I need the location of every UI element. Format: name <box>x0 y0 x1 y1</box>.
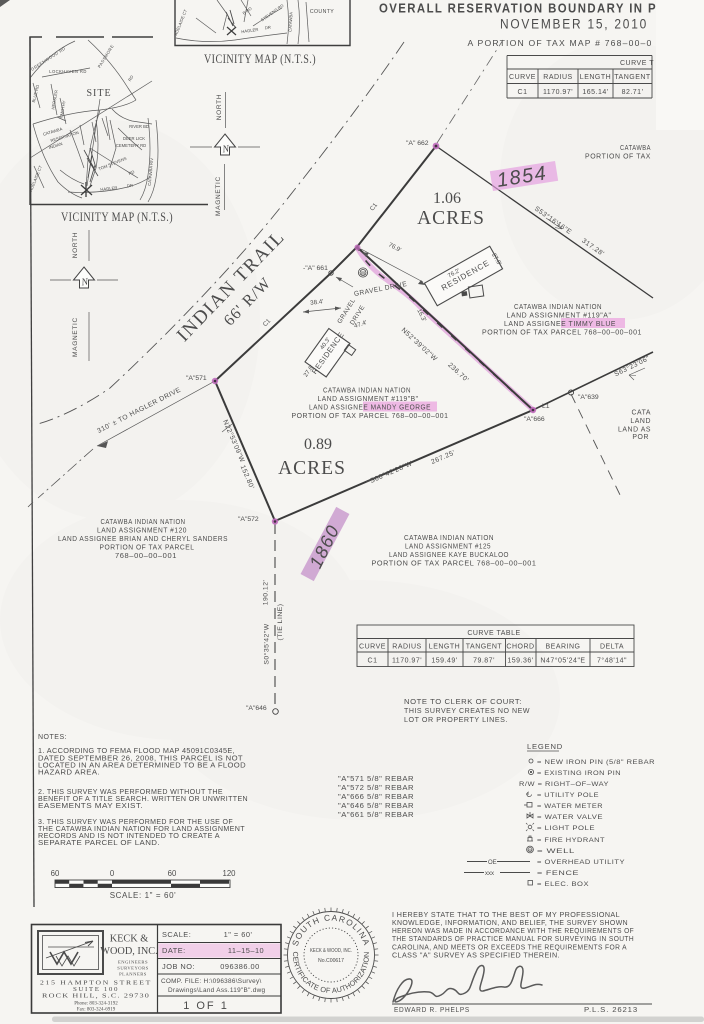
svg-text:TANGENT: TANGENT <box>466 644 503 651</box>
svg-text:= WELL: = WELL <box>537 848 575 855</box>
svg-text:"A"646: "A"646 <box>246 705 267 712</box>
svg-text:= UTILITY POLE: = UTILITY POLE <box>537 792 599 799</box>
svg-text:CATAWBA: CATAWBA <box>620 145 651 152</box>
svg-text:OE: OE <box>488 860 497 866</box>
svg-text:1" = 60': 1" = 60' <box>224 930 253 939</box>
svg-text:THE CATAWBA INDIAN NATION: THE CATAWBA INDIAN NATION FOR LAND ASSIG… <box>38 826 245 833</box>
svg-text:OVERALL RESERVATION BOUNDARY I: OVERALL RESERVATION BOUNDARY IN P <box>379 1 657 16</box>
svg-text:0.89: 0.89 <box>304 436 332 453</box>
svg-text:LOCATED IN AN AREA DETERMI: LOCATED IN AN AREA DETERMINED TO BE A FL… <box>38 763 246 770</box>
svg-text:LENGTH: LENGTH <box>580 74 611 81</box>
svg-text:CATAWBA: CATAWBA <box>287 12 293 32</box>
svg-text:"A"661 5/8" REBAR: "A"661 5/8" REBAR <box>338 812 414 819</box>
svg-text:1 OF 1: 1 OF 1 <box>183 1000 229 1012</box>
svg-text:No.C00617: No.C00617 <box>318 958 344 964</box>
svg-text:VICINITY MAP (N.T.S.): VICINITY MAP (N.T.S.) <box>204 52 316 66</box>
svg-text:SCALE: 1" = 60': SCALE: 1" = 60' <box>110 891 177 900</box>
svg-text:2. THIS SURVEY WAS PERFORME: 2. THIS SURVEY WAS PERFORMED WITHOUT THE <box>38 789 223 796</box>
svg-text:C1: C1 <box>518 89 528 96</box>
svg-text:CATAWBA INDIAN NATION: CATAWBA INDIAN NATION <box>514 304 602 311</box>
svg-text:1170.97': 1170.97' <box>543 89 573 96</box>
svg-text:CATAWBA INDIAN NATION: CATAWBA INDIAN NATION <box>323 388 411 395</box>
svg-text:W: W <box>361 271 366 277</box>
svg-text:PORTION OF TAX PARCEL 768–: PORTION OF TAX PARCEL 768–00–00–001 <box>482 330 642 337</box>
svg-text:ENGINEERS: ENGINEERS <box>118 960 148 965</box>
svg-text:THE STANDARDS OF PRACTICE: THE STANDARDS OF PRACTICE MANUAL FOR SUR… <box>392 936 634 943</box>
svg-text:= OVERHEAD UTILITY: = OVERHEAD UTILITY <box>537 859 625 866</box>
svg-text:LAND ASSIGNMENT #120: LAND ASSIGNMENT #120 <box>97 528 187 535</box>
svg-text:MAGNETIC: MAGNETIC <box>72 317 79 357</box>
svg-text:COMP. FILE: H:\096386\Survey: COMP. FILE: H:\096386\Survey\ <box>161 978 262 985</box>
svg-text:RADIUS: RADIUS <box>543 74 572 81</box>
svg-text:KECK & WOOD, INC.: KECK & WOOD, INC. <box>310 948 352 954</box>
svg-text:LAND ASSIGNMENT #125: LAND ASSIGNMENT #125 <box>405 544 491 551</box>
svg-text:R/W = RIGHT–OF–WAY: R/W = RIGHT–OF–WAY <box>519 781 609 788</box>
svg-text:"A"666 5/8" REBAR: "A"666 5/8" REBAR <box>338 794 414 801</box>
svg-text:PORTION OF TAX PARCEL 768–: PORTION OF TAX PARCEL 768–00–00–001 <box>372 561 537 568</box>
svg-text:"A" 662: "A" 662 <box>406 140 429 147</box>
svg-text:HEREON WAS MADE IN ACCORDA: HEREON WAS MADE IN ACCORDANCE WITH THE R… <box>392 928 634 935</box>
svg-text:SURVEYORS: SURVEYORS <box>117 966 148 971</box>
svg-text:THIS SURVEY CREATES NO NEW: THIS SURVEY CREATES NO NEW <box>404 706 530 715</box>
svg-text:xxx: xxx <box>485 871 494 877</box>
svg-text:DATE:: DATE: <box>162 946 186 955</box>
svg-text:CLASS "A" SURVEY AS SPECIF: CLASS "A" SURVEY AS SPECIFIED THEREIN. <box>392 953 560 960</box>
svg-text:159.36': 159.36' <box>507 658 533 665</box>
svg-text:CATAWBA INDIAN NATION: CATAWBA INDIAN NATION <box>101 519 186 526</box>
svg-text:= WATER METER: = WATER METER <box>537 803 603 810</box>
svg-text:= EXISTING IRON PIN: = EXISTING IRON PIN <box>537 770 621 777</box>
svg-text:1.06: 1.06 <box>433 190 461 207</box>
svg-text:CURVE T: CURVE T <box>620 60 654 67</box>
svg-text:NOTE TO CLERK OF COURT:: NOTE TO CLERK OF COURT: <box>404 697 522 706</box>
svg-text:DR: DR <box>264 25 271 31</box>
svg-text:PORTION OF TAX: PORTION OF TAX <box>585 154 651 161</box>
svg-text:N47°05'24"E: N47°05'24"E <box>540 657 585 665</box>
svg-text:NORTH: NORTH <box>216 94 223 121</box>
svg-text:CURVE: CURVE <box>509 74 536 81</box>
svg-text:L1: L1 <box>542 403 550 410</box>
svg-text:RADIUS: RADIUS <box>392 644 421 651</box>
svg-text:SITE: SITE <box>86 88 111 99</box>
svg-text:LOCKHAVEN RD: LOCKHAVEN RD <box>49 69 87 74</box>
svg-text:CATAWBA INDIAN NATION: CATAWBA INDIAN NATION <box>404 535 494 542</box>
svg-text:"A"572: "A"572 <box>238 516 259 523</box>
svg-text:VICINITY MAP (N.T.S.): VICINITY MAP (N.T.S.) <box>61 210 173 224</box>
svg-text:7°48'14": 7°48'14" <box>597 657 627 665</box>
svg-text:= FENCE: = FENCE <box>537 870 579 877</box>
svg-text:EASEMENTS MAY EXIST.: EASEMENTS MAY EXIST. <box>38 803 143 810</box>
svg-text:= NEW IRON PIN (5/8" REBA: = NEW IRON PIN (5/8" REBAR <box>537 759 655 766</box>
svg-text:60: 60 <box>51 869 60 878</box>
svg-text:KECK &: KECK & <box>110 934 149 945</box>
svg-text:RIVER BD: RIVER BD <box>129 124 149 129</box>
svg-text:"A"639: "A"639 <box>578 394 599 401</box>
svg-text:= WATER VALVE: = WATER VALVE <box>537 814 603 821</box>
svg-text:165.14': 165.14' <box>582 89 608 96</box>
svg-text:Phone: 803-324-3192: Phone: 803-324-3192 <box>74 1002 118 1007</box>
svg-text:ACRES: ACRES <box>278 458 346 479</box>
svg-text:DR: DR <box>127 183 134 189</box>
svg-text:Drawings\Land Ass.119"B".dwg: Drawings\Land Ass.119"B".dwg <box>168 987 266 994</box>
svg-text:-"A" 661: -"A" 661 <box>303 265 328 272</box>
svg-text:LAND ASSIGNEE BRIAN AND CH: LAND ASSIGNEE BRIAN AND CHERYL SANDERS <box>58 536 228 543</box>
svg-text:120: 120 <box>222 869 236 878</box>
svg-text:NOVEMBER 15, 2010: NOVEMBER 15, 2010 <box>500 17 648 32</box>
svg-text:CURVE TABLE: CURVE TABLE <box>467 630 520 637</box>
svg-text:CURVE: CURVE <box>359 644 386 651</box>
svg-text:"A"571 5/8" REBAR: "A"571 5/8" REBAR <box>338 776 414 783</box>
svg-text:COUNTY: COUNTY <box>310 9 334 15</box>
svg-text:JOB NO:: JOB NO: <box>162 962 195 971</box>
svg-text:BENEFIT OF A TITLE SEARCH.: BENEFIT OF A TITLE SEARCH. WRITTEN OR UN… <box>38 796 248 803</box>
svg-text:LAND ASSIGNEE TIMMY BLUE: LAND ASSIGNEE TIMMY BLUE <box>504 321 616 328</box>
svg-text:CEMETERY RD: CEMETERY RD <box>116 143 146 148</box>
svg-text:LOT OR PROPERTY LINES.: LOT OR PROPERTY LINES. <box>404 715 508 724</box>
svg-text:DEER LICK: DEER LICK <box>123 136 145 141</box>
svg-text:NORTH: NORTH <box>72 232 79 259</box>
svg-text:CATA: CATA <box>631 410 651 417</box>
svg-text:NOTES:: NOTES: <box>38 734 67 741</box>
svg-text:EDWARD R. PHELPS: EDWARD R. PHELPS <box>394 1005 470 1014</box>
svg-text:KNOWLEDGE, INFORMATION, AND: KNOWLEDGE, INFORMATION, AND BELIEF, THE … <box>392 920 628 927</box>
svg-text:LAND AS: LAND AS <box>618 427 651 434</box>
svg-text:PLANNERS: PLANNERS <box>119 972 147 977</box>
svg-text:768–00–00–001: 768–00–00–001 <box>115 553 177 560</box>
svg-text:TANGENT: TANGENT <box>614 74 651 81</box>
svg-text:190.12': 190.12' <box>263 580 270 606</box>
svg-text:"A"646 5/8" REBAR: "A"646 5/8" REBAR <box>338 803 414 810</box>
svg-text:"A"571: "A"571 <box>186 375 207 382</box>
svg-text:38.4': 38.4' <box>310 298 324 306</box>
svg-text:SCALE:: SCALE: <box>162 930 191 939</box>
svg-text:DATED SEPTEMBER 26, 2008,: DATED SEPTEMBER 26, 2008, THIS PARCEL IS… <box>38 756 243 763</box>
svg-text:LAND: LAND <box>630 418 651 425</box>
svg-text:RECORDS AND IS NOT INTENDE: RECORDS AND IS NOT INTENDED TO CREATE A <box>38 833 220 840</box>
svg-text:LAND ASSIGNEE KAYE BUCKALOO: LAND ASSIGNEE KAYE BUCKALOO <box>389 552 509 559</box>
svg-text:79.87': 79.87' <box>473 658 495 665</box>
svg-text:60: 60 <box>168 869 177 878</box>
svg-text:3. THIS SURVEY WAS PERFORME: 3. THIS SURVEY WAS PERFORMED FOR THE USE… <box>38 819 233 826</box>
svg-text:SEPARATE PARCEL OF LAND.: SEPARATE PARCEL OF LAND. <box>38 840 160 847</box>
svg-text:159.49': 159.49' <box>431 658 457 665</box>
svg-text:CAROLINA, AND MEETS OR EXC: CAROLINA, AND MEETS OR EXCEEDS THE REQUI… <box>392 945 627 952</box>
svg-text:"A"666: "A"666 <box>524 416 545 423</box>
svg-text:1170.97': 1170.97' <box>392 658 422 665</box>
svg-text:096386.00: 096386.00 <box>220 962 259 971</box>
svg-text:POR: POR <box>632 434 649 441</box>
svg-text:Fax: 803-324-6919: Fax: 803-324-6919 <box>77 1008 116 1013</box>
svg-text:PORTION OF TAX PARCEL: PORTION OF TAX PARCEL <box>100 545 195 552</box>
svg-text:= LIGHT POLE: = LIGHT POLE <box>537 825 595 832</box>
svg-text:I HEREBY STATE THAT TO TH: I HEREBY STATE THAT TO THE BEST OF MY PR… <box>392 912 620 919</box>
svg-text:ROCK HILL, S.C. 29730: ROCK HILL, S.C. 29730 <box>42 993 150 1000</box>
svg-text:WOOD, INC.: WOOD, INC. <box>100 946 157 957</box>
svg-text:82.71': 82.71' <box>622 89 644 96</box>
svg-text:"A"572 5/8" REBAR: "A"572 5/8" REBAR <box>338 785 414 792</box>
svg-text:P.L.S. 26213: P.L.S. 26213 <box>584 1005 638 1014</box>
svg-text:A PORTION OF TAX MAP # 768–00–: A PORTION OF TAX MAP # 768–00–0 <box>468 39 653 48</box>
svg-text:LAND ASSIGNEE MANDY GEORGE: LAND ASSIGNEE MANDY GEORGE <box>309 405 431 412</box>
svg-text:HAZARD AREA.: HAZARD AREA. <box>38 770 100 777</box>
svg-text:LENGTH: LENGTH <box>429 644 460 651</box>
svg-text:S0°35'42"W: S0°35'42"W <box>263 623 271 664</box>
svg-text:11–15–10: 11–15–10 <box>228 946 264 955</box>
svg-text:= ELEC. BOX: = ELEC. BOX <box>537 881 589 888</box>
svg-text:BEARING: BEARING <box>545 644 580 651</box>
svg-text:1. ACCORDING TO FEMA FLOOD: 1. ACCORDING TO FEMA FLOOD MAP 45091C034… <box>38 748 235 755</box>
svg-text:CHORD: CHORD <box>506 644 534 651</box>
svg-text:0: 0 <box>110 869 115 878</box>
svg-text:C1: C1 <box>368 658 378 665</box>
svg-text:= FIRE HYDRANT: = FIRE HYDRANT <box>537 837 605 844</box>
svg-text:DELTA: DELTA <box>600 644 624 651</box>
svg-text:ACRES: ACRES <box>417 208 485 229</box>
svg-text:MAGNETIC: MAGNETIC <box>215 176 222 216</box>
svg-text:(TIE LINE): (TIE LINE) <box>277 603 284 640</box>
svg-text:LEGEND: LEGEND <box>527 742 563 751</box>
svg-text:PORTION OF TAX PARCEL 768–: PORTION OF TAX PARCEL 768–00–00–001 <box>292 413 449 420</box>
